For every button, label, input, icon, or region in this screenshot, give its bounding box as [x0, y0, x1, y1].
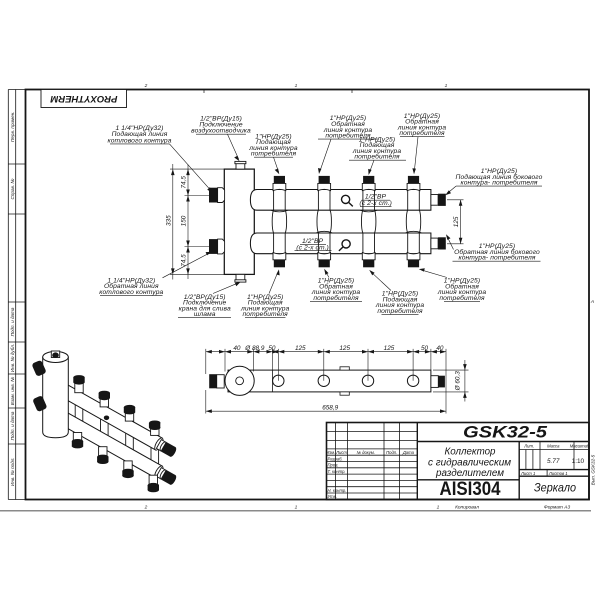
svg-text:74,5: 74,5 [181, 176, 188, 189]
svg-text:Ø 88,9: Ø 88,9 [244, 345, 265, 352]
svg-text:котлового контура: котлового контура [99, 289, 163, 296]
svg-text:5.77: 5.77 [547, 458, 560, 465]
svg-text:50: 50 [421, 345, 429, 352]
svg-text:40: 40 [436, 345, 444, 352]
svg-text:125: 125 [295, 345, 306, 352]
svg-text:Листов 1: Листов 1 [548, 471, 568, 476]
svg-text:1: 1 [437, 505, 440, 511]
svg-text:(с 2-х ст.): (с 2-х ст.) [296, 244, 329, 251]
svg-text:Утв.: Утв. [328, 494, 338, 499]
svg-text:Инв. № подл.: Инв. № подл. [10, 457, 15, 486]
svg-text:Разраб.: Разраб. [328, 456, 343, 461]
svg-text:Формат А3: Формат А3 [544, 505, 571, 511]
svg-text:335: 335 [165, 215, 172, 226]
svg-text:125: 125 [453, 216, 460, 227]
svg-text:Зеркало: Зеркало [534, 481, 576, 495]
svg-text:с гидравлическим: с гидравлическим [428, 457, 511, 468]
svg-text:Подп. и дата: Подп. и дата [10, 307, 15, 336]
svg-text:Копировал: Копировал [455, 505, 479, 511]
svg-text:658,9: 658,9 [322, 404, 338, 411]
svg-text:воздухоотводчика: воздухоотводчика [191, 127, 251, 135]
svg-text:AISI304: AISI304 [440, 479, 501, 500]
svg-text:потребителя: потребителя [354, 153, 400, 161]
svg-text:Лист 1: Лист 1 [520, 471, 535, 476]
svg-text:Вып. GSK32-5: Вып. GSK32-5 [591, 454, 596, 485]
svg-text:потребителя: потребителя [243, 310, 289, 318]
svg-text:1: 1 [295, 83, 298, 89]
svg-text:Перв. примен.: Перв. примен. [10, 111, 15, 142]
svg-text:А: А [590, 299, 594, 305]
svg-text:(с 2-х ст.): (с 2-х ст.) [359, 200, 392, 207]
svg-text:шлама: шлама [194, 311, 216, 318]
svg-text:1: 1 [445, 83, 448, 89]
svg-text:1: 1 [295, 505, 298, 511]
svg-text:потребителя: потребителя [313, 294, 359, 302]
svg-text:50: 50 [268, 345, 276, 352]
svg-text:Дата: Дата [402, 450, 415, 455]
svg-text:Подп. и дата: Подп. и дата [10, 411, 15, 440]
svg-text:потребителя: потребителя [251, 150, 297, 158]
svg-text:Взам. инв. №: Взам. инв. № [10, 377, 15, 405]
svg-text:125: 125 [384, 345, 395, 352]
svg-text:Масса: Масса [547, 443, 560, 448]
svg-text:Н. контр.: Н. контр. [328, 488, 347, 493]
svg-text:№ докум.: № докум. [356, 450, 374, 455]
svg-text:Т. контр.: Т. контр. [328, 469, 346, 474]
svg-text:74,5: 74,5 [181, 254, 188, 267]
svg-text:125: 125 [339, 345, 350, 352]
svg-text:разделителем: разделителем [435, 468, 504, 479]
svg-text:Ø 60,3: Ø 60,3 [455, 371, 462, 392]
svg-text:1:10: 1:10 [572, 458, 585, 465]
svg-text:Пров.: Пров. [328, 463, 339, 468]
svg-text:контура- потребителя: контура- потребителя [460, 179, 537, 187]
svg-text:потребителя: потребителя [399, 129, 445, 137]
svg-text:Масштаб: Масштаб [570, 443, 590, 448]
svg-text:Лист: Лист [335, 450, 347, 455]
svg-text:Справ. №: Справ. № [10, 179, 15, 200]
svg-text:Лит.: Лит. [523, 443, 534, 448]
svg-text:потребителя: потребителя [377, 307, 423, 315]
svg-text:GSK32-5: GSK32-5 [463, 424, 548, 442]
svg-text:Коллектор: Коллектор [445, 447, 496, 458]
svg-text:Подп.: Подп. [386, 450, 397, 455]
svg-text:2: 2 [144, 505, 148, 511]
svg-text:PROXYTHERM: PROXYTHERM [49, 93, 117, 104]
svg-text:2: 2 [144, 83, 148, 89]
svg-text:40: 40 [233, 345, 241, 352]
svg-text:150: 150 [181, 215, 188, 226]
svg-text:потребителя: потребителя [439, 294, 485, 302]
svg-text:котлового контура: котлового контура [107, 137, 171, 144]
svg-text:Инв. № дубл.: Инв. № дубл. [10, 344, 15, 372]
svg-text:контура- потребителя: контура- потребителя [458, 254, 535, 262]
svg-text:Изм.: Изм. [326, 450, 335, 455]
